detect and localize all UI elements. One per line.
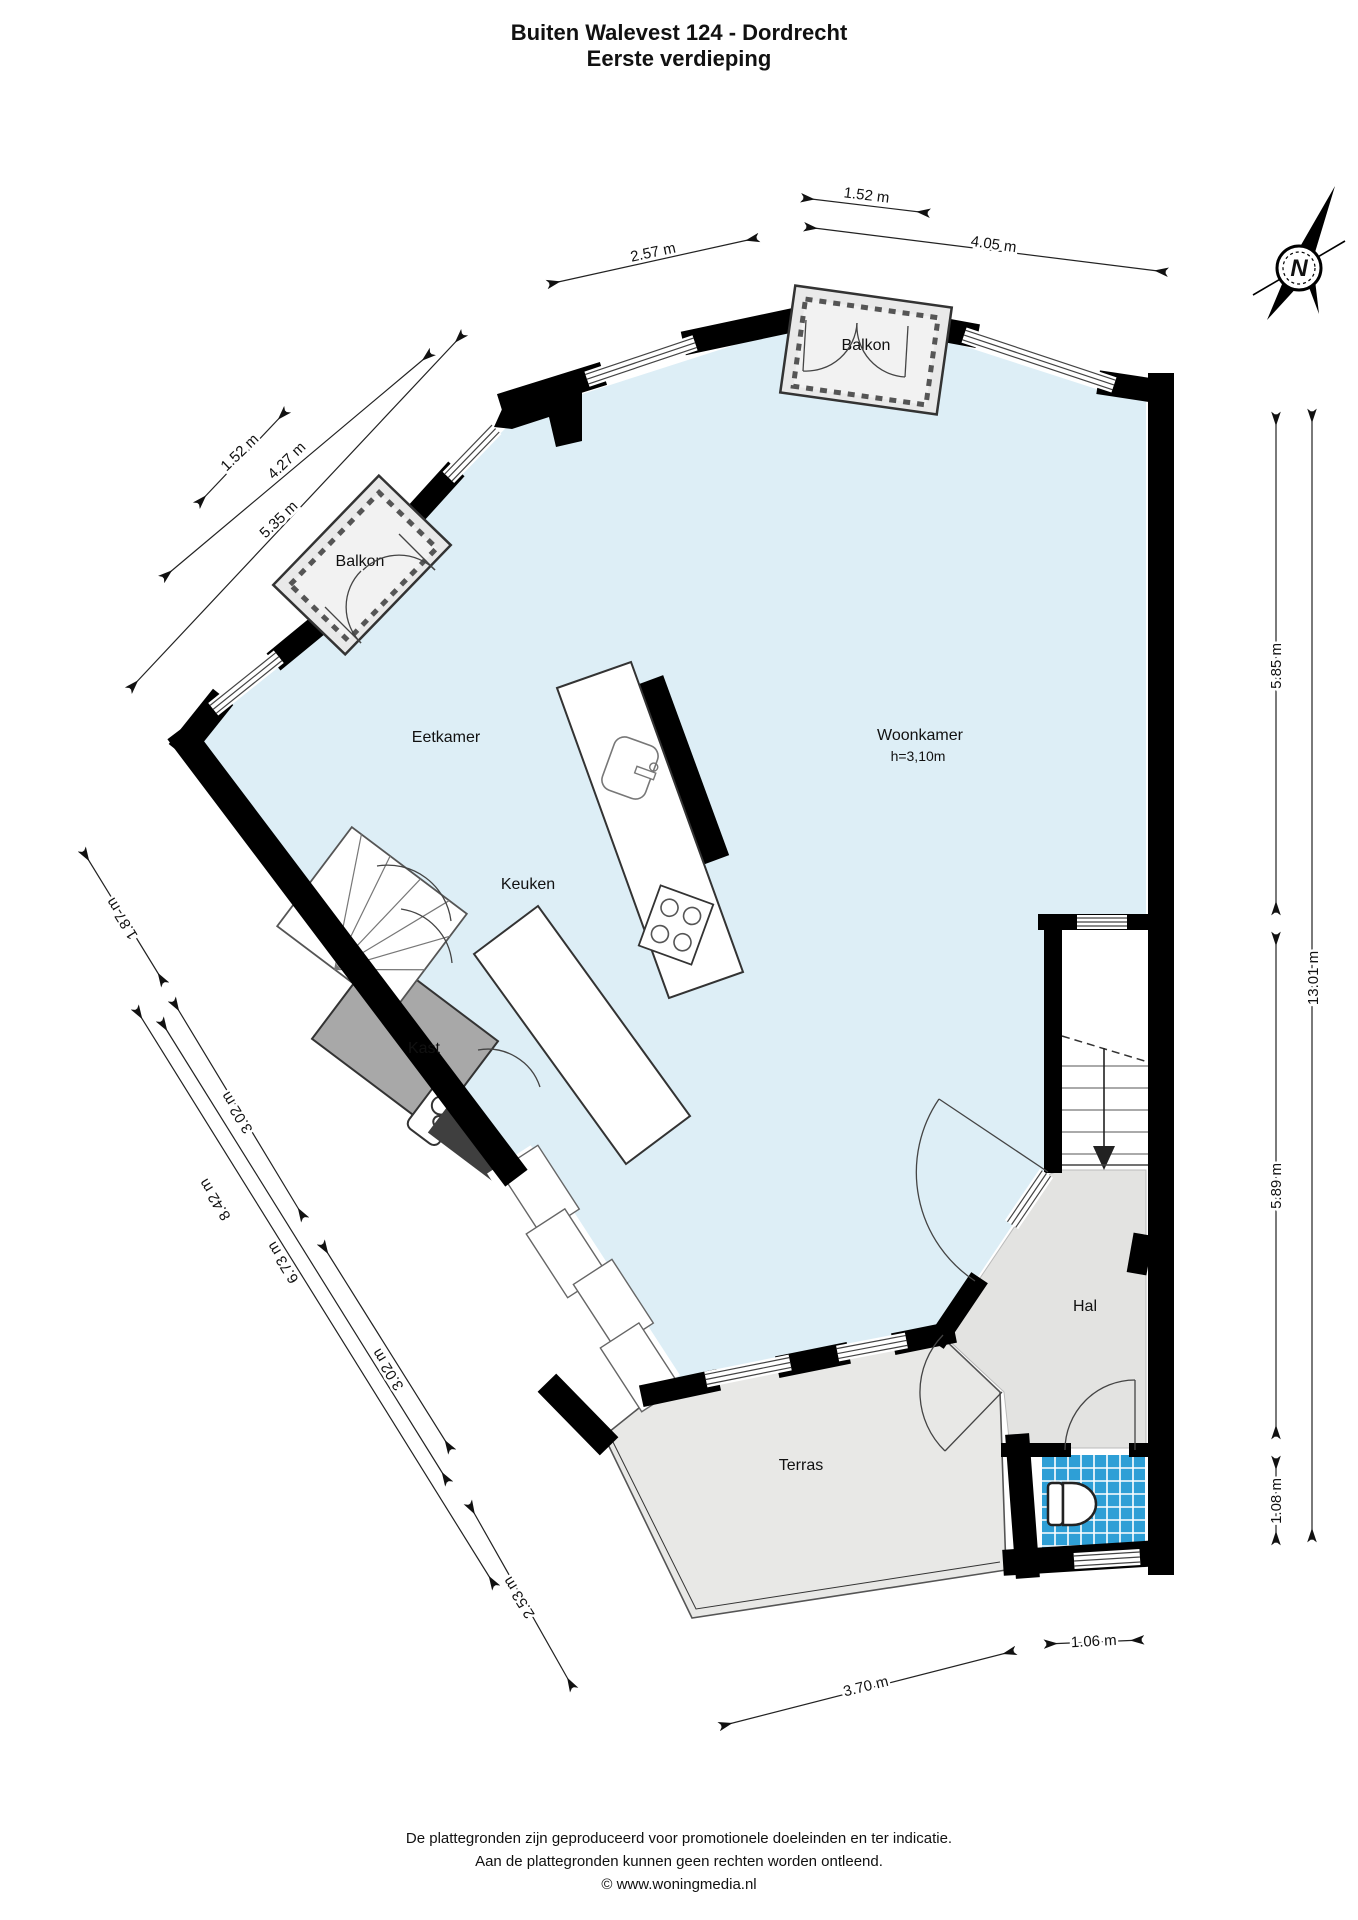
toilet-room — [1042, 1455, 1145, 1554]
room-label-woonkamer: Woonkamer — [877, 727, 964, 744]
dim-right-585: 5.85 m — [1268, 643, 1285, 689]
room-label-terras: Terras — [779, 1457, 823, 1474]
dim-left-152: 1.52 m — [217, 431, 262, 475]
dim-right-1301: 13.01 m — [1305, 951, 1322, 1005]
dim-bottom-370: 3.70 m — [842, 1673, 891, 1701]
dim-lower-842: 8.42 m — [196, 1175, 235, 1223]
floorplan-page: Buiten Walevest 124 - Dordrecht Eerste v… — [0, 0, 1358, 1920]
balkon-top-label: Balkon — [842, 337, 891, 354]
room-label-eetkamer: Eetkamer — [412, 729, 481, 746]
north-compass-icon: N — [1253, 186, 1345, 320]
balkon-left-label: Balkon — [336, 553, 385, 570]
compass-n-label: N — [1290, 255, 1308, 282]
floorplan-canvas: Buiten Walevest 124 - Dordrecht Eerste v… — [0, 0, 1358, 1920]
page-title: Buiten Walevest 124 - Dordrecht — [511, 20, 848, 45]
dim-right-108: 1.08 m — [1268, 1478, 1285, 1524]
dim-lower-187: 1.87 m — [103, 894, 142, 942]
dim-lower-302a: 3.02 m — [218, 1088, 257, 1136]
room-label-hal: Hal — [1073, 1298, 1097, 1315]
room-label-kast: Kast — [408, 1040, 441, 1057]
dim-top-257: 2.57 m — [629, 240, 677, 266]
dim-top-405: 4.05 m — [970, 233, 1018, 256]
footer-line-1: De plattegronden zijn geproduceerd voor … — [406, 1830, 952, 1847]
dim-left-535: 5.35 m — [256, 498, 301, 542]
room-note-woonkamer-height: h=3,10m — [891, 748, 946, 764]
page-subtitle: Eerste verdieping — [587, 46, 772, 71]
dim-lower-302b: 3.02 m — [369, 1345, 408, 1393]
footer-copyright: © www.woningmedia.nl — [601, 1876, 756, 1893]
dim-bottom-106: 1.06 m — [1070, 1632, 1117, 1651]
dim-lower-253: 2.53 m — [500, 1573, 539, 1621]
stairwell-floor — [1062, 930, 1148, 1166]
room-label-keuken: Keuken — [501, 876, 555, 893]
toilet-fixture-icon — [1048, 1483, 1096, 1525]
footer-line-2: Aan de plattegronden kunnen geen rechten… — [475, 1853, 883, 1870]
dim-right-589: 5.89 m — [1268, 1163, 1285, 1209]
